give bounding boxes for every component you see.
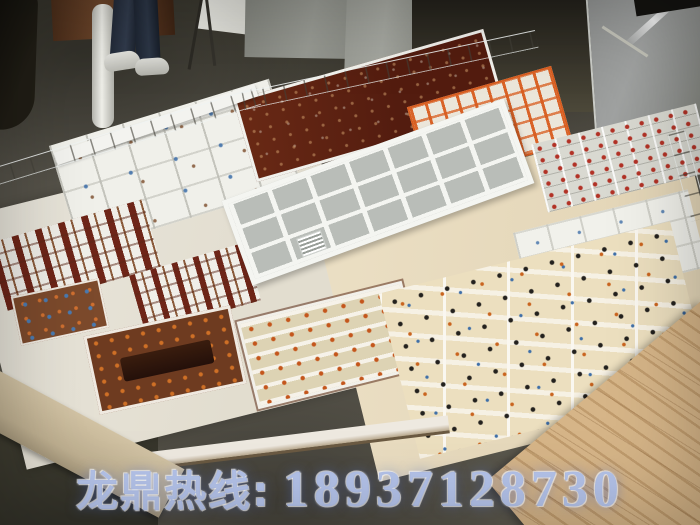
photo-architectural-model: 龙鼎热线: 18937128730 — [0, 0, 700, 525]
model-staircase — [296, 230, 327, 258]
person-shoe-right — [134, 57, 169, 76]
watermark-hotline-label: 龙鼎热线: — [76, 458, 271, 519]
gray-partition-a — [244, 0, 355, 59]
watermark-phone-number: 18937128730 — [283, 460, 624, 519]
conference-table — [120, 339, 215, 382]
watermark: 龙鼎热线: 18937128730 — [0, 458, 700, 519]
